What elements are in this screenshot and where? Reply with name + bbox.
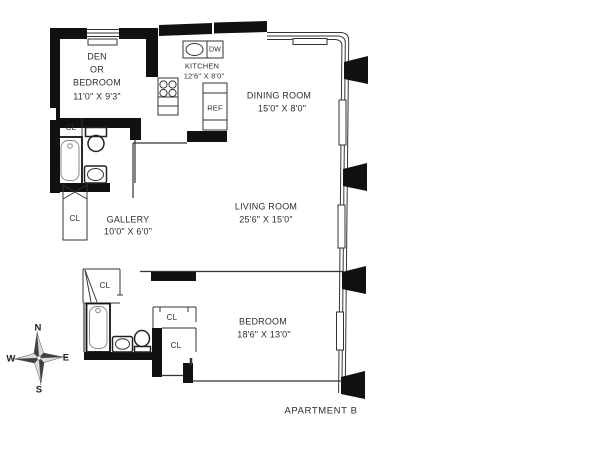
right-window-sill-3 (337, 312, 344, 350)
closet-label-gallery: CL (70, 215, 81, 223)
closet-label-hall: CL (100, 282, 111, 290)
room-label-den-line2: OR (90, 66, 104, 75)
sink-1-basin (88, 169, 104, 181)
compass-north-label: N (34, 323, 41, 333)
room-label-gallery: GALLERY (107, 216, 150, 225)
wall-kitchen-bottom (187, 131, 227, 142)
pier-1 (344, 56, 368, 84)
wall-left-notch (50, 108, 56, 120)
toilet-1-bowl (88, 136, 104, 152)
closet-label-bath1: CL (66, 124, 77, 132)
wall-bedroom-top (151, 271, 196, 281)
bathtub-1-basin (61, 141, 79, 181)
closet-label-bedroom-upper: CL (167, 314, 178, 322)
room-dims-living: 25'6" X 15'0" (239, 216, 292, 225)
refrigerator-label: REF (207, 104, 223, 112)
room-dims-kitchen: 12'6" X 8'0" (184, 72, 225, 80)
room-dims-gallery: 10'0" X 6'0" (104, 228, 152, 237)
room-label-den-line1: DEN (87, 53, 107, 62)
burner (160, 89, 167, 96)
room-label-dining: DINING ROOM (247, 92, 311, 101)
interior-walls (84, 140, 344, 381)
wall-top-kitchen2 (214, 21, 267, 34)
den-window-sill (88, 39, 117, 45)
bathtub-2-drain (96, 308, 101, 313)
burner (169, 89, 176, 96)
wall-top-a (50, 28, 87, 39)
dining-top-window-sill (293, 39, 327, 45)
burner (160, 81, 167, 88)
compass-south-label: S (36, 385, 43, 395)
den-window (87, 30, 119, 46)
pier-2 (343, 163, 367, 191)
kitchen-fixtures (158, 41, 227, 130)
toilet-2-tank (135, 347, 151, 353)
burner (169, 81, 176, 88)
compass-rose (10, 331, 68, 385)
wall-den-right (146, 28, 158, 77)
pier-4 (341, 371, 365, 399)
wall-den-bottom-jut (130, 118, 141, 140)
dishwasher-label: DW (209, 46, 221, 53)
floorplan-page: DEN OR BEDROOM 11'0" X 9'3" KITCHEN 12'6… (0, 0, 600, 450)
kitchen-sink-basin (186, 44, 203, 56)
wall-top-kitchen (159, 23, 212, 36)
room-label-bedroom: BEDROOM (239, 318, 287, 327)
bathtub-1-drain (68, 144, 73, 149)
toilet-2-bowl (135, 331, 150, 347)
room-dims-bedroom: 18'6" X 13'0" (237, 331, 290, 340)
right-window-sill-1 (339, 100, 346, 145)
room-label-living: LIVING ROOM (235, 203, 297, 212)
room-dims-dining: 15'0" X 8'0" (258, 105, 306, 114)
right-window-sill-2 (338, 205, 345, 248)
wall-bath2-bottom (84, 352, 162, 360)
room-dims-den: 11'0" X 9'3" (73, 93, 121, 102)
sink-2-basin (116, 339, 130, 350)
bathroom2-fixtures (87, 304, 151, 353)
compass-west-label: W (6, 354, 15, 364)
room-label-kitchen: KITCHEN (185, 62, 219, 70)
wall-bedroom-corner (183, 363, 193, 383)
pier-3 (342, 266, 366, 294)
closet-label-bedroom-lower: CL (171, 342, 182, 350)
room-label-den-line3: BEDROOM (73, 79, 121, 88)
compass-east-label: E (63, 353, 70, 363)
apartment-label: APARTMENT B (284, 406, 357, 416)
